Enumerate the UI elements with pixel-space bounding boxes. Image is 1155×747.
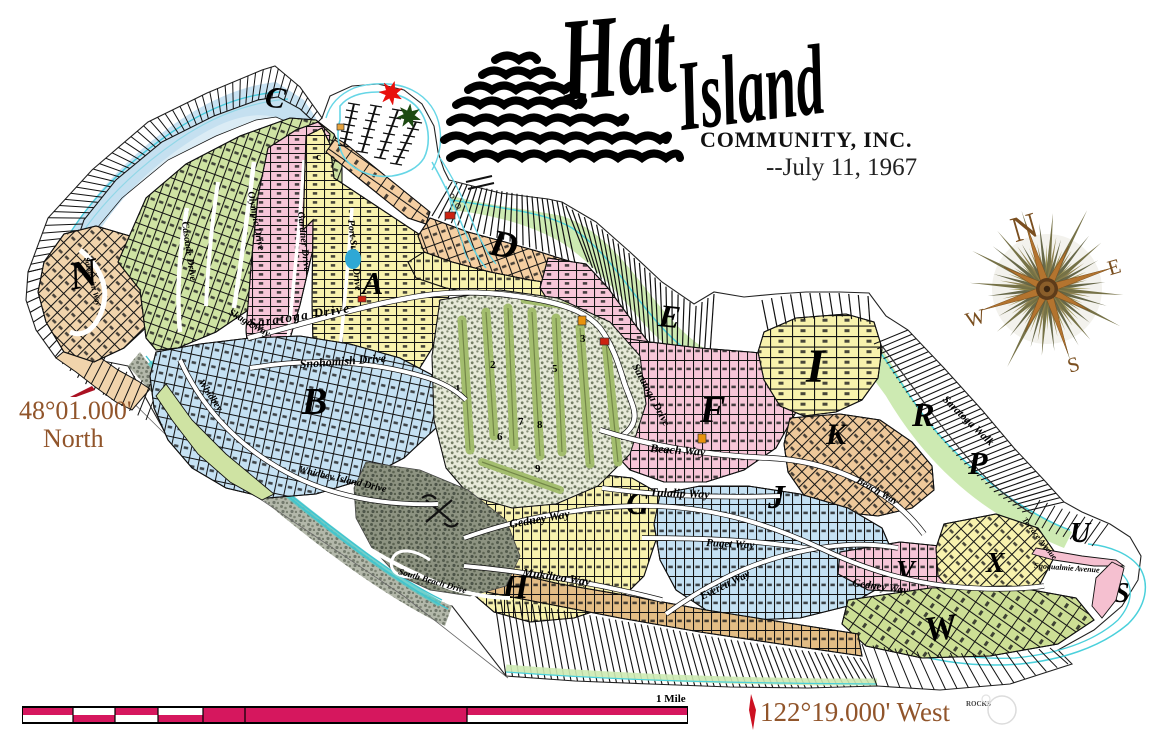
svg-text:122°19.000' West: 122°19.000' West — [760, 697, 950, 727]
svg-text:--July 11, 1967: --July 11, 1967 — [766, 154, 917, 181]
svg-text:ROCKS: ROCKS — [966, 700, 991, 708]
svg-text:Hat: Hat — [554, 0, 681, 126]
svg-text:North: North — [43, 424, 104, 453]
svg-text:48°01.000': 48°01.000' — [19, 396, 132, 425]
svg-text:E: E — [656, 297, 682, 335]
svg-text:c: c — [316, 151, 321, 163]
svg-text:X: X — [985, 548, 1006, 579]
svg-text:6: 6 — [497, 431, 503, 443]
svg-text:K: K — [825, 418, 848, 451]
svg-text:3: 3 — [580, 333, 586, 345]
svg-text:5: 5 — [552, 363, 558, 375]
svg-text:F: F — [699, 389, 725, 431]
svg-text:B: B — [301, 381, 327, 423]
svg-text:8: 8 — [537, 419, 543, 431]
svg-text:Tulalip Way: Tulalip Way — [650, 485, 711, 501]
svg-text:I: I — [805, 340, 827, 393]
svg-text:P: P — [967, 445, 988, 481]
svg-text:COMMUNITY, INC.: COMMUNITY, INC. — [700, 127, 912, 152]
svg-text:U: U — [1070, 518, 1092, 549]
svg-text:Puget Way: Puget Way — [706, 537, 755, 552]
svg-text:2: 2 — [490, 359, 496, 371]
svg-text:7: 7 — [518, 416, 524, 428]
svg-text:1 Mile: 1 Mile — [656, 693, 686, 705]
svg-text:R: R — [911, 397, 935, 434]
svg-text:9: 9 — [535, 463, 541, 475]
